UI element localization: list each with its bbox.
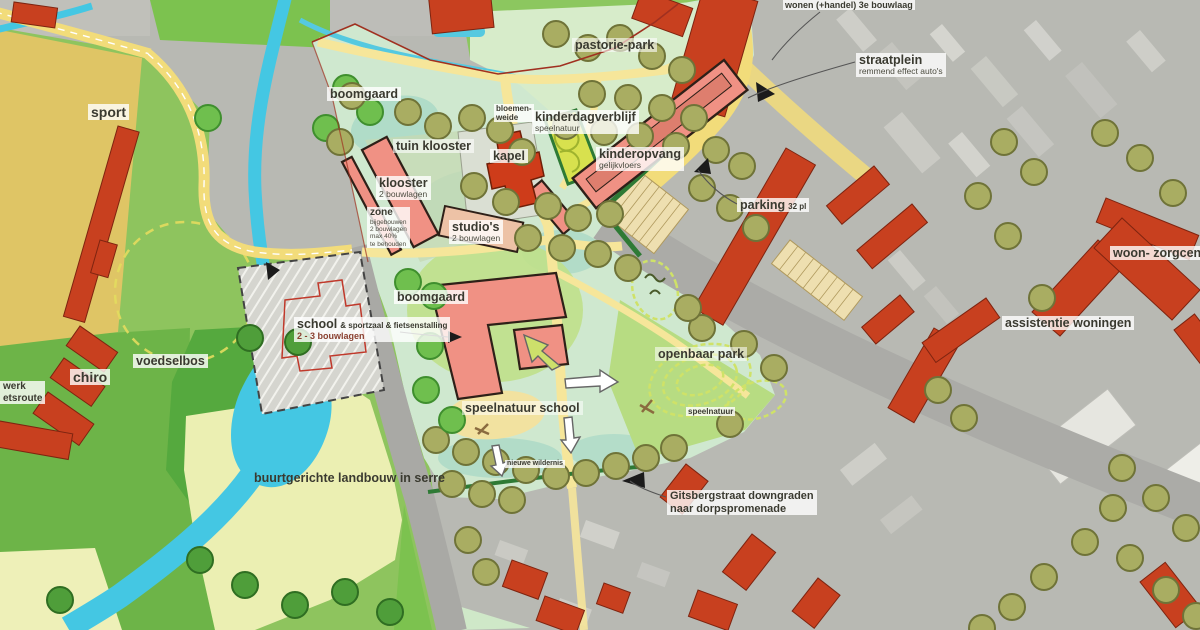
label-speelnatuur-school: speelnatuur school bbox=[462, 401, 583, 415]
label-pastorie-park: pastorie-park bbox=[572, 38, 657, 52]
label-straatplein: straatplein remmend effect auto's bbox=[856, 53, 946, 77]
map-graphics bbox=[0, 0, 1200, 630]
label-klooster: klooster 2 bouwlagen bbox=[376, 176, 431, 200]
label-wonen: wonen (+handel) 3e bouwlaag bbox=[783, 0, 915, 10]
label-school: school& sportzaal & fietsenstalling 2 - … bbox=[294, 317, 450, 342]
label-gitsbergstraat: Gitsbergstraat downgraden naar dorpsprom… bbox=[667, 490, 817, 515]
masterplan-map: sport boomgaard tuin klooster klooster 2… bbox=[0, 0, 1200, 630]
label-landbouw: buurtgerichte landbouw in serre bbox=[251, 471, 448, 485]
label-parking: parking32 pl bbox=[737, 198, 809, 212]
label-kapel: kapel bbox=[490, 149, 528, 163]
label-sport: sport bbox=[88, 104, 129, 120]
label-nieuwe-wildernis: nieuwe wildernis bbox=[505, 460, 565, 468]
label-voedselbos: voedselbos bbox=[133, 354, 208, 368]
label-boomgaard-mid: boomgaard bbox=[394, 290, 468, 304]
label-fietsroute-clipped: werk etsroute bbox=[0, 381, 45, 404]
label-bloemenweide: bloemen- weide bbox=[494, 104, 534, 122]
label-zone: zone bijgebouwen 2 bouwlagen max 40% te … bbox=[367, 207, 410, 248]
label-kinderopvang: kinderopvang gelijkvloers bbox=[596, 147, 684, 171]
label-openbaar-park: openbaar park bbox=[655, 347, 747, 361]
label-tuin-klooster: tuin klooster bbox=[393, 139, 474, 153]
label-kinderdagverblijf: kinderdagverblijf speelnatuur bbox=[532, 110, 639, 134]
label-assistentie-woningen: assistentie woningen bbox=[1002, 316, 1134, 330]
label-studios: studio's 2 bouwlagen bbox=[449, 220, 503, 244]
label-speelnatuur-klein: speelnatuur bbox=[686, 407, 735, 416]
label-chiro: chiro bbox=[70, 369, 110, 385]
label-boomgaard-top: boomgaard bbox=[327, 87, 401, 101]
label-woon-zorgcentrum: woon- zorgcentrum bbox=[1110, 246, 1200, 260]
